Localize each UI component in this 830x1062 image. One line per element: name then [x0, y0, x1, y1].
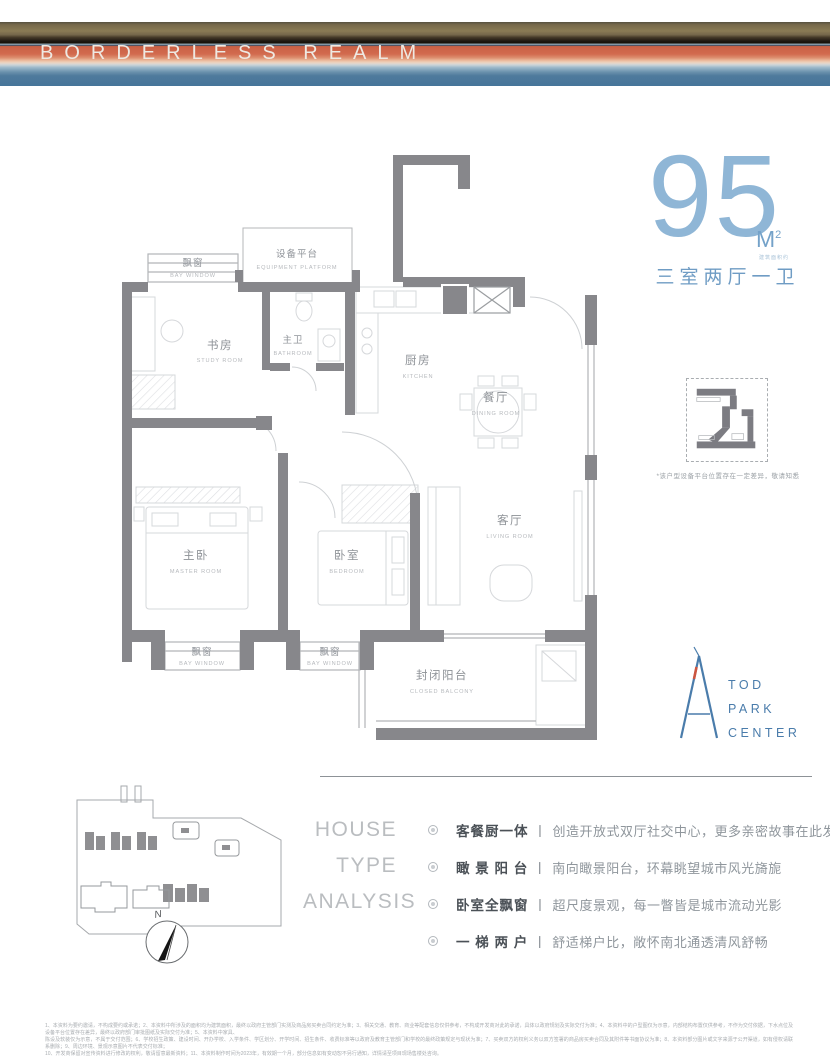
equipment-detail-drawing — [687, 379, 767, 461]
svg-text:BAY WINDOW: BAY WINDOW — [307, 661, 353, 667]
label-bay-window-top: 飘窗 — [182, 257, 203, 269]
svg-text:MASTER ROOM: MASTER ROOM — [170, 569, 222, 575]
site-outline-buildings — [81, 822, 239, 912]
analysis-item-desc: 南向瞰景阳台，环幕眺望城市风光旖旎 — [552, 858, 782, 877]
target-icon — [428, 936, 438, 946]
svg-text:EQUIPMENT PLATFORM: EQUIPMENT PLATFORM — [257, 265, 338, 271]
label-dining: 餐厅 — [483, 390, 509, 404]
svg-text:BAY WINDOW: BAY WINDOW — [170, 273, 216, 279]
analysis-title-line-1: HOUSE — [303, 812, 397, 848]
furniture-layer — [127, 287, 586, 725]
svg-text:BAY WINDOW: BAY WINDOW — [179, 661, 225, 667]
analysis-item-head: 客餐厨一体 — [456, 820, 529, 840]
target-icon — [428, 899, 438, 909]
shaft-box — [474, 287, 510, 313]
svg-text:DINING ROOM: DINING ROOM — [472, 411, 520, 417]
analysis-item-separator: 丨 — [533, 858, 546, 877]
analysis-title-line-3: ANALYSIS — [303, 884, 397, 920]
analysis-item-desc: 舒适梯户比，敞怀南北通透清风舒畅 — [552, 932, 768, 951]
label-study: 书房 — [207, 339, 233, 352]
analysis-item-head: 一 梯 两 户 — [456, 931, 528, 951]
label-bay-window-mid: 飘窗 — [319, 646, 340, 658]
disclaimer: 1、本资料为要约邀请，不构成要约或承诺；2、本资料中所涉及的面积均为建筑面积，最… — [45, 1023, 793, 1058]
label-master: 主卧 — [183, 549, 209, 562]
label-balcony: 封闭阳台 — [416, 668, 468, 682]
analysis-item: 瞰 景 阳 台 丨 南向瞰景阳台，环幕眺望城市风光旖旎 — [428, 857, 818, 877]
tod-park-center-logo: TOD PARK CENTER — [660, 642, 815, 760]
floor-plan: 设备平台 EQUIPMENT PLATFORM 飘窗 BAY WINDOW 书房… — [90, 135, 650, 770]
svg-text:BATHROOM: BATHROOM — [273, 351, 312, 357]
label-bay-window-left: 飘窗 — [191, 646, 212, 658]
svg-text:LIVING ROOM: LIVING ROOM — [486, 534, 533, 540]
compass: N — [146, 909, 188, 963]
svg-text:KITCHEN: KITCHEN — [403, 374, 434, 380]
equipment-detail-note: *该户型设备平台位置存在一定差异，敬请知悉 — [638, 470, 818, 480]
logo-line-3: CENTER — [728, 726, 800, 740]
label-bedroom: 卧室 — [334, 548, 360, 562]
svg-text:CLOSED BALCONY: CLOSED BALCONY — [410, 689, 474, 695]
banner-title: BORDERLESS REALM — [40, 42, 427, 65]
analysis-item-separator: 丨 — [534, 895, 547, 914]
logo-a-glyph — [681, 647, 717, 738]
analysis-item-head: 瞰 景 阳 台 — [456, 857, 528, 877]
analysis-item-separator: 丨 — [534, 821, 547, 840]
layout-text: 三室两厅一卫 — [640, 262, 815, 289]
site-buildings — [85, 828, 230, 902]
analysis-item-head: 卧室全飘窗 — [456, 894, 529, 914]
disclaimer-line-1: 1、本资料为要约邀请，不构成要约或承诺；2、本资料中所涉及的面积均为建筑面积，最… — [45, 1023, 793, 1037]
site-plan: N — [55, 782, 295, 970]
svg-text:BEDROOM: BEDROOM — [329, 569, 364, 575]
label-living: 客厅 — [497, 513, 523, 527]
svg-text:STUDY ROOM: STUDY ROOM — [197, 358, 244, 364]
analysis-item-desc: 超尺度景观，每一瞥皆是城市流动光影 — [553, 895, 783, 914]
equipment-detail-box — [686, 378, 768, 462]
analysis-title-line-2: TYPE — [303, 848, 397, 884]
logo-line-2: PARK — [728, 702, 775, 716]
analysis-divider — [320, 776, 812, 777]
analysis-item: 卧室全飘窗 丨 超尺度景观，每一瞥皆是城市流动光影 — [428, 894, 818, 914]
target-icon — [428, 825, 438, 835]
area-unit: M2 — [756, 226, 781, 253]
target-icon — [428, 862, 438, 872]
analysis-item: 一 梯 两 户 丨 舒适梯户比，敞怀南北通透清风舒畅 — [428, 931, 818, 951]
analysis-item-separator: 丨 — [533, 932, 546, 951]
analysis-items: 客餐厨一体 丨 创造开放式双厅社交中心，更多亲密故事在此发生 瞰 景 阳 台 丨… — [428, 820, 818, 968]
area-note: 建筑面积约 — [759, 254, 789, 261]
analysis-item-desc: 创造开放式双厅社交中心，更多亲密故事在此发生 — [553, 821, 830, 840]
logo-line-1: TOD — [728, 678, 765, 692]
analysis-title: HOUSE TYPE ANALYSIS — [303, 812, 397, 920]
banner-stripes: BORDERLESS REALM — [0, 22, 830, 86]
label-kitchen: 厨房 — [405, 354, 431, 367]
compass-label: N — [154, 909, 164, 921]
disclaimer-line-3: 10、开发商保留对宣传资料进行修改的权利，敬请留意最新资料；11、本资料制作时间… — [45, 1051, 793, 1058]
analysis-item: 客餐厨一体 丨 创造开放式双厅社交中心，更多亲密故事在此发生 — [428, 820, 818, 840]
label-equipment-platform: 设备平台 — [276, 248, 318, 260]
label-master-bath: 主卫 — [282, 334, 303, 346]
disclaimer-line-2: 陈设及软装仅为示意，不属于交付范围；6、学校招生政策、建设时间、开办学校、入学条… — [45, 1037, 793, 1051]
